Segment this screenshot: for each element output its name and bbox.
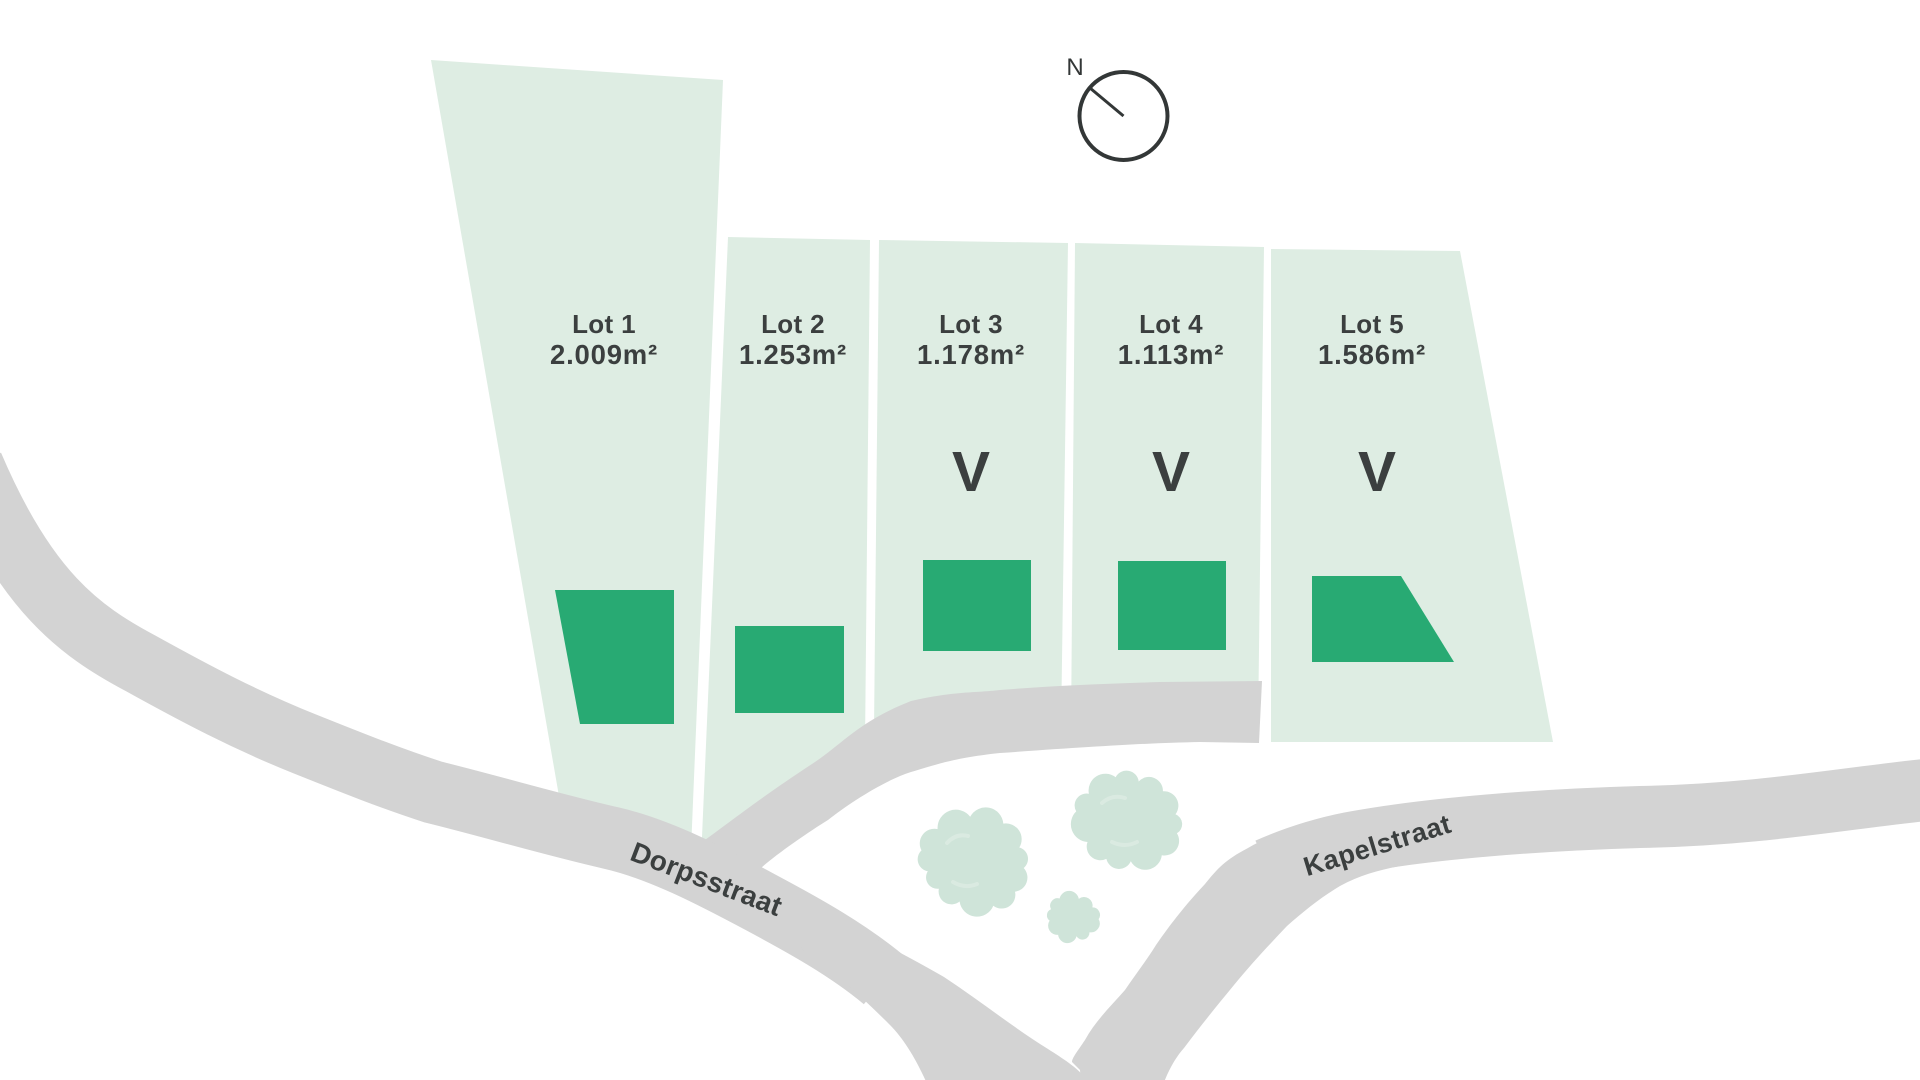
- svg-text:Lot 2: Lot 2: [761, 309, 825, 339]
- svg-text:V: V: [1152, 440, 1190, 504]
- svg-text:Lot 4: Lot 4: [1139, 309, 1203, 339]
- svg-text:N: N: [1066, 54, 1083, 81]
- svg-text:1.178m²: 1.178m²: [917, 339, 1025, 370]
- svg-text:V: V: [952, 440, 990, 504]
- svg-text:Lot 5: Lot 5: [1340, 309, 1404, 339]
- svg-text:1.586m²: 1.586m²: [1318, 339, 1426, 370]
- svg-text:V: V: [1358, 440, 1396, 504]
- svg-text:1.113m²: 1.113m²: [1118, 339, 1225, 370]
- svg-text:1.253m²: 1.253m²: [739, 339, 847, 370]
- svg-text:Lot 1: Lot 1: [572, 309, 636, 339]
- svg-text:Lot 3: Lot 3: [939, 309, 1003, 339]
- svg-text:2.009m²: 2.009m²: [550, 339, 658, 370]
